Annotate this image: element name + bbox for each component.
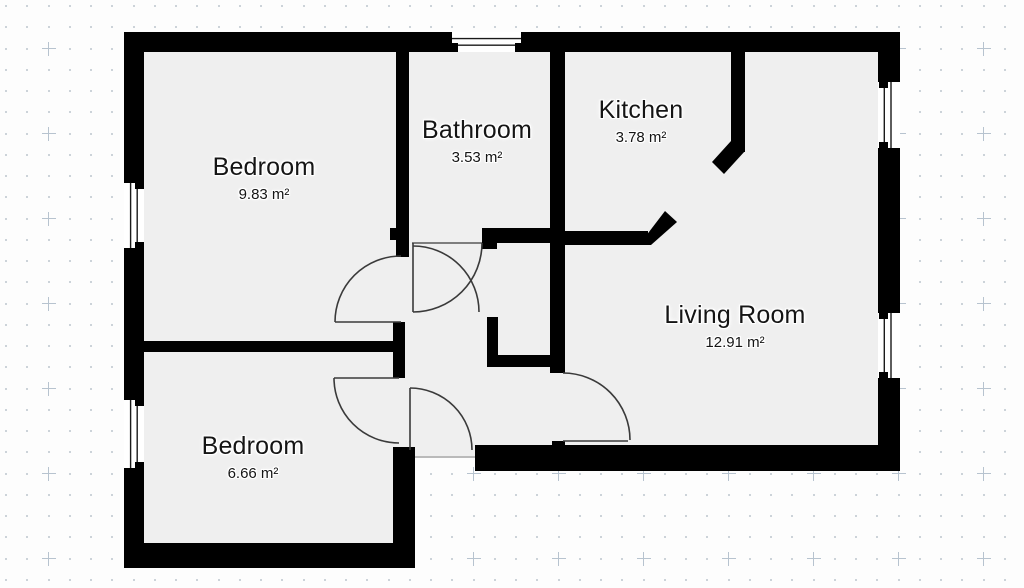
- room-name: Bedroom: [202, 433, 305, 461]
- wall-exterior-bottom-right: [475, 445, 900, 471]
- floorplan-drawing: [0, 0, 1024, 588]
- wall-kitchen-bottom: [565, 231, 648, 245]
- window-top: [452, 32, 521, 52]
- wall-center-vertical: [550, 52, 565, 373]
- room-label-bedroom-2: Bedroom 6.66 m²: [202, 433, 305, 482]
- room-area: 3.53 m²: [422, 148, 532, 165]
- room-label-living-room: Living Room 12.91 m²: [664, 302, 805, 351]
- room-area: 3.78 m²: [599, 128, 684, 145]
- room-area: 12.91 m²: [664, 333, 805, 350]
- room-label-bedroom-1: Bedroom 9.83 m²: [213, 154, 316, 203]
- room-name: Bathroom: [422, 117, 532, 145]
- room-area: 6.66 m²: [202, 464, 305, 481]
- wall-exterior-bedroom2-right: [393, 447, 415, 543]
- wall-hinge-stub-bathroom-left: [390, 228, 396, 240]
- wall-hall-pocket-horizontal: [487, 355, 560, 367]
- room-label-kitchen: Kitchen 3.78 m²: [599, 97, 684, 146]
- room-area: 9.83 m²: [213, 185, 316, 202]
- wall-bedroom-divider: [144, 341, 399, 352]
- room-label-bathroom: Bathroom 3.53 m²: [422, 117, 532, 166]
- wall-exterior-bottom-left: [124, 543, 415, 568]
- wall-bathroom-left: [396, 52, 409, 257]
- wall-hinge-stub-bathroom-bottom: [482, 243, 497, 249]
- window-left-upper: [124, 183, 144, 248]
- room-name: Living Room: [664, 302, 805, 330]
- wall-kitchen-stub: [731, 52, 745, 152]
- room-name: Bedroom: [213, 154, 316, 182]
- floorplan-canvas: Bedroom 9.83 m² Bathroom 3.53 m² Kitchen…: [0, 0, 1024, 588]
- wall-exterior-left: [124, 32, 144, 568]
- wall-hinge-stub-living-door: [552, 441, 565, 449]
- window-right-lower: [878, 313, 900, 378]
- window-left-lower: [124, 400, 144, 468]
- window-right-upper: [878, 82, 900, 148]
- room-name: Kitchen: [599, 97, 684, 125]
